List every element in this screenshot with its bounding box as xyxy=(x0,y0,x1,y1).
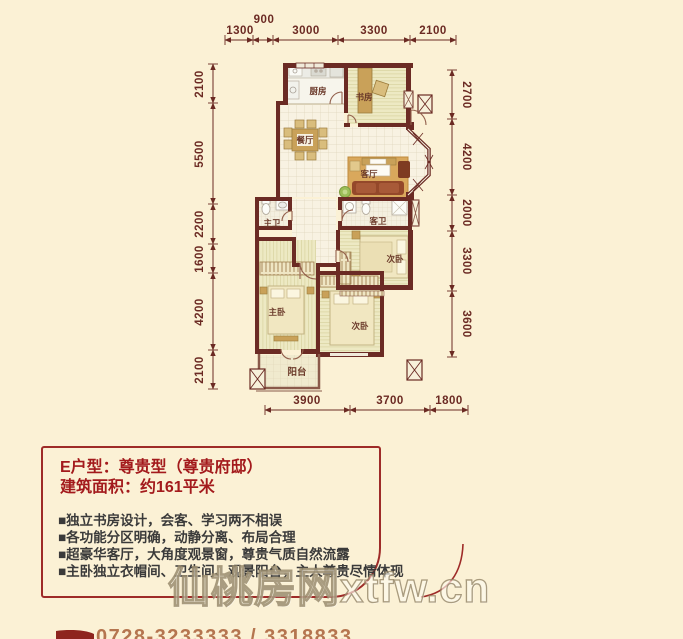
dim-label: 3700 xyxy=(376,395,404,407)
red-sliver xyxy=(56,630,94,639)
room-label-master-bath: 主卫 xyxy=(263,218,281,228)
room-label-study: 书房 xyxy=(355,92,372,102)
balcony-post-left xyxy=(250,369,265,389)
bath-east-window xyxy=(412,200,419,226)
dim-labels-bottom: 3900 3700 1800 xyxy=(293,395,463,407)
room-label-living: 客厅 xyxy=(359,169,378,179)
bedroom-bottom-bed xyxy=(322,291,381,345)
bedroom-bottom-window xyxy=(330,353,368,356)
bedroom-right-wardrobe xyxy=(340,252,351,284)
dim-label: 4200 xyxy=(194,298,206,326)
room-label-balcony: 阳台 xyxy=(287,366,307,378)
dim-label: 900 xyxy=(254,14,275,26)
dim-label: 2000 xyxy=(460,199,472,227)
room-label-bedroom-right: 次卧 xyxy=(386,254,404,264)
room-label-dining: 餐厅 xyxy=(295,135,314,145)
dim-label: 3900 xyxy=(293,395,321,407)
dim-label: 5500 xyxy=(194,140,206,168)
entry-post xyxy=(418,95,432,113)
master-wardrobe xyxy=(260,262,314,275)
feature-item: ■超豪华客厅，大角度观景窗，尊贵气质自然流露 xyxy=(58,546,379,563)
dim-label: 3000 xyxy=(292,25,320,37)
dim-label: 1800 xyxy=(435,395,463,407)
feature-item: ■各功能分区明确，动静分离、布局合理 xyxy=(58,529,379,546)
dim-label: 2200 xyxy=(194,210,206,238)
room-label-bedroom-bottom: 次卧 xyxy=(351,321,369,331)
feature-item: ■独立书房设计，会客、学习两不相误 xyxy=(58,512,379,529)
dim-labels-right: 2700 4200 2000 3300 3600 xyxy=(460,81,472,338)
floorplan-page: 厨房 书房 餐厅 客厅 主卫 客卫 次卧 主卧 次卧 阳台 1300 900 3… xyxy=(0,0,683,639)
dim-label: 3300 xyxy=(460,247,472,275)
kitchen-window xyxy=(296,63,324,68)
bedroom-right-rail xyxy=(340,291,384,296)
decorative-arc xyxy=(421,544,463,597)
dim-label: 1300 xyxy=(226,25,254,37)
room-label-master-bedroom: 主卧 xyxy=(268,307,286,317)
dim-labels-top: 1300 900 3000 3300 2100 xyxy=(226,14,447,37)
feature-list: ■独立书房设计，会客、学习两不相误 ■各功能分区明确，动静分离、布局合理 ■超豪… xyxy=(58,512,379,580)
phone-number: 0728-3233333 / 3318833 xyxy=(96,626,353,639)
study-east-window xyxy=(404,91,413,108)
plan-title: E户型：尊贵型（尊贵府邸） xyxy=(60,458,379,478)
dim-chain-right xyxy=(447,70,457,357)
plan-area: 建筑面积：约161平米 xyxy=(60,478,379,498)
dim-labels-left: 2100 5500 2200 1600 4200 2100 xyxy=(194,70,206,384)
feature-item: ■主卧独立衣帽间、卫生间、观景阳台，主人尊贵尽情体现 xyxy=(58,563,379,580)
dim-label: 3300 xyxy=(360,25,388,37)
dim-label: 2100 xyxy=(194,356,206,384)
room-label-kitchen: 厨房 xyxy=(309,86,326,96)
dim-label: 2700 xyxy=(460,81,472,109)
post-right xyxy=(407,360,422,380)
dim-label: 1600 xyxy=(194,245,206,273)
dim-label: 2100 xyxy=(194,70,206,98)
room-label-guest-bath: 客卫 xyxy=(368,216,387,226)
dim-label: 3600 xyxy=(460,310,472,338)
dim-chain-left xyxy=(208,64,218,389)
dim-label: 2100 xyxy=(419,25,447,37)
dim-label: 4200 xyxy=(460,143,472,171)
info-box: E户型：尊贵型（尊贵府邸） 建筑面积：约161平米 ■独立书房设计，会客、学习两… xyxy=(41,446,381,598)
